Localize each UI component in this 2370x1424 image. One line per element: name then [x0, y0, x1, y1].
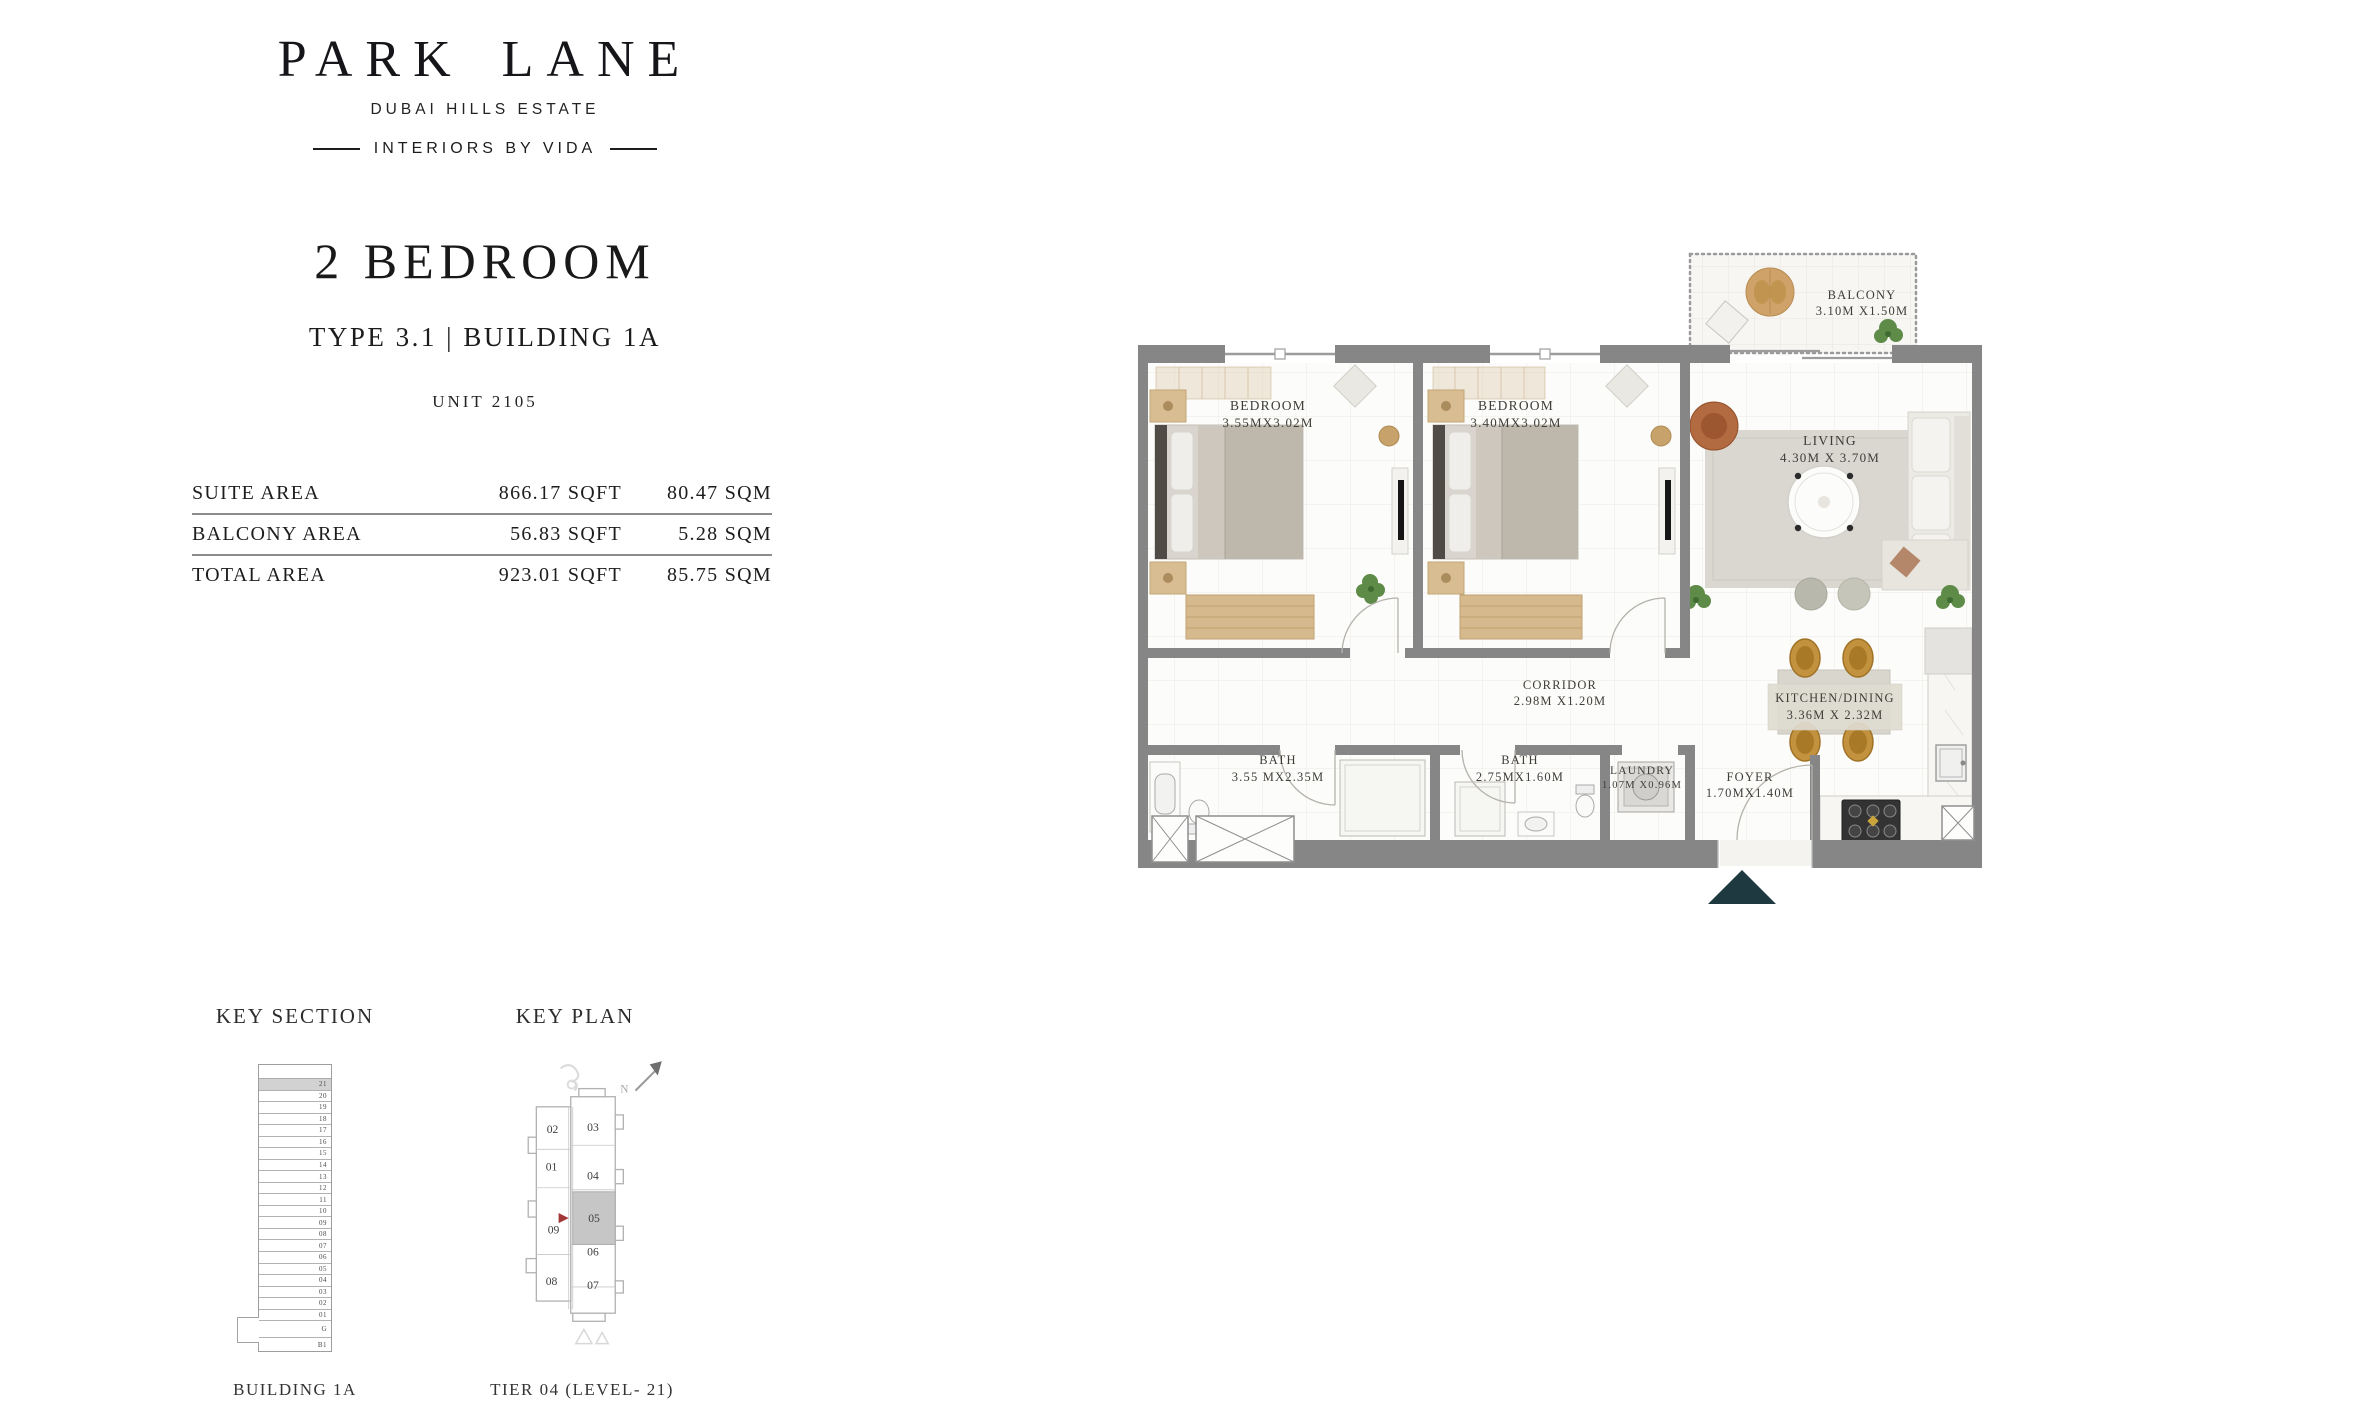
room-label: FOYER [1727, 770, 1774, 784]
area-sqft: 56.83 SQFT [422, 523, 622, 546]
area-sqft: 866.17 SQFT [422, 482, 622, 505]
stool [1379, 426, 1399, 446]
key-plan: N 02 03 01 04 05 09 06 08 [508, 1056, 680, 1360]
key-section-floor-04: 04 [259, 1275, 331, 1287]
room-dims: 3.10M X1.50M [1816, 304, 1909, 318]
shower [1340, 760, 1425, 836]
coffee-table [1788, 466, 1860, 538]
page-title: 2 BEDROOM [170, 232, 800, 290]
brochure-page: PARK LANE DUBAI HILLS ESTATE INTERIORS B… [0, 0, 2370, 1424]
key-section-floor-18: 18 [259, 1114, 331, 1126]
unit-label: 02 [547, 1123, 559, 1136]
unit-label: 08 [546, 1275, 558, 1288]
area-sqm: 85.75 SQM [622, 564, 772, 587]
pouf [1795, 578, 1827, 610]
room-dims: 3.40MX3.02M [1470, 415, 1561, 430]
room-label: BATH [1501, 753, 1538, 767]
stove [1842, 800, 1900, 842]
key-section-floor-19: 19 [259, 1102, 331, 1114]
key-section-floor-14: 14 [259, 1160, 331, 1172]
north-arrow-icon: N [620, 1061, 661, 1095]
key-section-floor-13: 13 [259, 1171, 331, 1183]
decor-sculpture-icon [561, 1065, 579, 1091]
key-section-heading: KEY SECTION [165, 1004, 425, 1029]
key-section-floor-03: 03 [259, 1287, 331, 1299]
key-section-floor-g: G [259, 1321, 331, 1338]
unit-label: 03 [587, 1121, 599, 1134]
toilet [1576, 785, 1594, 817]
key-section-floor-08: 08 [259, 1229, 331, 1241]
key-section-floor-b1: B1 [259, 1338, 331, 1351]
room-label: BEDROOM [1478, 398, 1554, 413]
pouf [1838, 578, 1870, 610]
key-section-floor-20: 20 [259, 1091, 331, 1103]
key-section-tower: 21 20 19 18 17 16 15 14 13 12 11 10 09 0… [258, 1064, 332, 1352]
area-label: BALCONY AREA [192, 523, 422, 546]
key-section-floor-16: 16 [259, 1137, 331, 1149]
decor-fountain-icon [576, 1329, 608, 1343]
unit-label: 01 [546, 1161, 558, 1174]
brand-tagline: INTERIORS BY VIDA [170, 140, 800, 158]
key-section-floor-06: 06 [259, 1252, 331, 1264]
unit-label: 04 [587, 1170, 599, 1183]
room-label: BALCONY [1828, 288, 1897, 302]
room-dims: 3.55 MX2.35M [1232, 770, 1325, 784]
unit-label: 09 [548, 1223, 560, 1236]
area-table: SUITE AREA 866.17 SQFT 80.47 SQM BALCONY… [192, 474, 772, 595]
brand-logo: PARK LANE [170, 30, 800, 89]
key-section-floor-15: 15 [259, 1148, 331, 1160]
bed [1433, 425, 1578, 559]
dining-chair [1843, 639, 1873, 677]
unit-label: 06 [587, 1246, 599, 1259]
stool [1651, 426, 1671, 446]
dining-chair [1790, 639, 1820, 677]
key-section-floor-11: 11 [259, 1194, 331, 1206]
area-sqm: 80.47 SQM [622, 482, 772, 505]
sink [1936, 745, 1966, 781]
tagline-rule-right [610, 148, 657, 150]
tower-podium-annex [237, 1317, 259, 1343]
bed [1155, 425, 1303, 559]
key-plan-heading: KEY PLAN [445, 1004, 705, 1029]
area-label: TOTAL AREA [192, 564, 422, 587]
unit-label: 05 [588, 1212, 600, 1225]
area-sqft: 923.01 SQFT [422, 564, 622, 587]
room-dims: 2.98M X1.20M [1514, 694, 1607, 708]
tv-unit [1392, 468, 1408, 554]
windows [1225, 349, 1892, 359]
room-dims: 3.55MX3.02M [1222, 415, 1313, 430]
tagline-text: INTERIORS BY VIDA [374, 140, 596, 158]
unit-number: UNIT 2105 [170, 392, 800, 412]
room-dims: 3.36M X 2.32M [1787, 708, 1884, 722]
room-dims: 2.75MX1.60M [1476, 770, 1564, 784]
area-label: SUITE AREA [192, 482, 422, 505]
room-dims: 1.07M X0.96M [1602, 780, 1682, 791]
room-label: LIVING [1803, 433, 1857, 448]
entry-arrow-icon [1708, 870, 1776, 904]
room-label: CORRIDOR [1523, 678, 1597, 692]
key-section-floor-01: 01 [259, 1310, 331, 1322]
table-row: SUITE AREA 866.17 SQFT 80.47 SQM [192, 474, 772, 515]
key-section-floor-07: 07 [259, 1240, 331, 1252]
tagline-rule-left [313, 148, 360, 150]
room-label: KITCHEN/DINING [1775, 691, 1895, 705]
key-section-floor-09: 09 [259, 1217, 331, 1229]
unit-label: 07 [587, 1279, 599, 1292]
tower-parapet [259, 1065, 331, 1079]
wardrobe [1460, 595, 1582, 639]
key-plan-caption: TIER 04 (LEVEL- 21) [462, 1380, 702, 1400]
table-row: TOTAL AREA 923.01 SQFT 85.75 SQM [192, 556, 772, 595]
room-dims: 1.70MX1.40M [1706, 786, 1794, 800]
key-section-floor-17: 17 [259, 1125, 331, 1137]
room-label: BATH [1259, 753, 1296, 767]
key-section-floor-21: 21 [259, 1079, 331, 1091]
room-label: LAUNDRY [1610, 765, 1674, 777]
tv-unit [1659, 468, 1675, 554]
key-section-caption: BUILDING 1A [170, 1380, 420, 1400]
table-row: BALCONY AREA 56.83 SQFT 5.28 SQM [192, 515, 772, 556]
room-dims: 4.30M X 3.70M [1780, 450, 1880, 465]
floorplan: BALCONY 3.10M X1.50M BEDROOM 3.55MX3.02M… [1130, 240, 2000, 912]
wardrobe [1186, 595, 1314, 639]
unit-type-line: TYPE 3.1 | BUILDING 1A [170, 322, 800, 353]
room-label: BEDROOM [1230, 398, 1306, 413]
key-section-floor-05: 05 [259, 1264, 331, 1276]
key-section-floor-12: 12 [259, 1183, 331, 1195]
north-label: N [620, 1084, 628, 1096]
area-sqm: 5.28 SQM [622, 523, 772, 546]
key-section-floor-02: 02 [259, 1298, 331, 1310]
brand-location: DUBAI HILLS ESTATE [170, 101, 800, 119]
key-section-floor-10: 10 [259, 1206, 331, 1218]
